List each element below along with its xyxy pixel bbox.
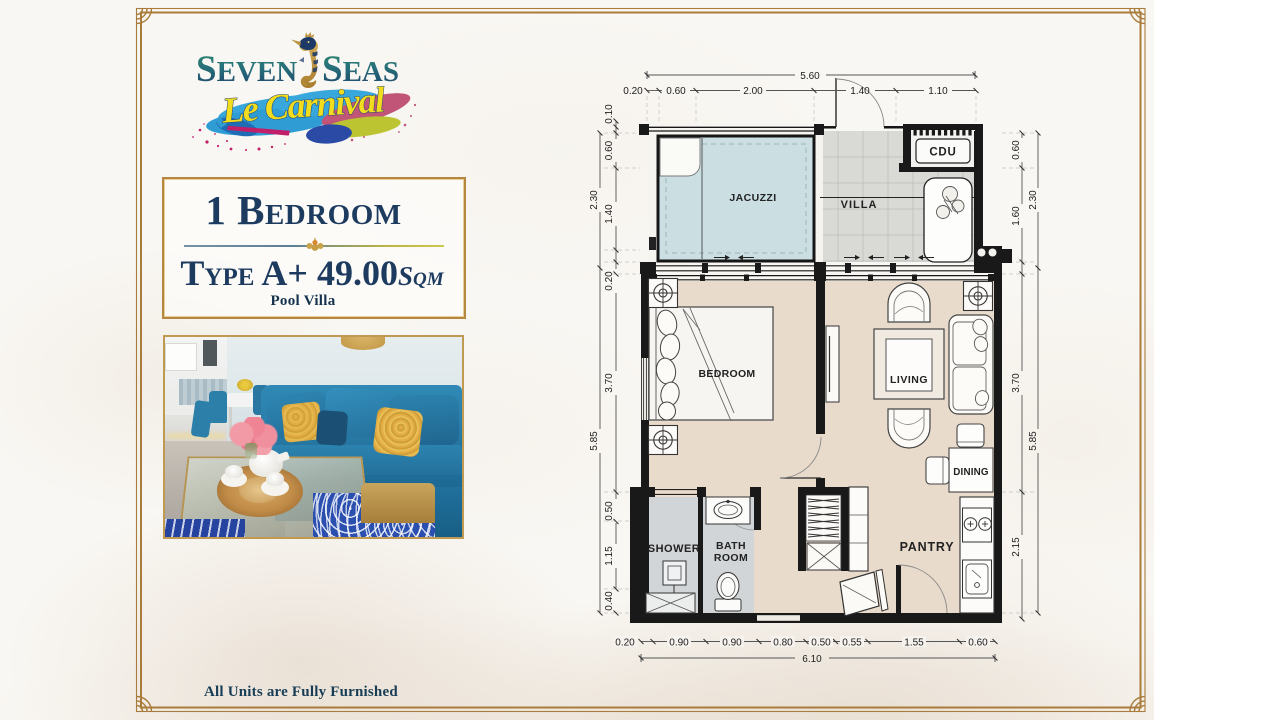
svg-text:0.50: 0.50 xyxy=(604,501,615,521)
svg-text:PANTRY: PANTRY xyxy=(900,540,955,554)
svg-text:0.60: 0.60 xyxy=(666,86,686,97)
svg-text:0.60: 0.60 xyxy=(1011,140,1022,160)
svg-text:CDU: CDU xyxy=(929,147,956,159)
svg-text:5.85: 5.85 xyxy=(589,431,600,451)
svg-text:ROOM: ROOM xyxy=(714,552,748,564)
svg-text:BEDROOM: BEDROOM xyxy=(699,368,756,380)
svg-text:BATH: BATH xyxy=(716,540,746,552)
svg-text:3.70: 3.70 xyxy=(604,373,615,393)
svg-text:1.15: 1.15 xyxy=(604,546,615,566)
svg-text:SEVEN: SEVEN xyxy=(196,49,297,90)
svg-text:0.10: 0.10 xyxy=(604,104,615,124)
svg-text:0.50: 0.50 xyxy=(811,638,831,649)
svg-text:1.60: 1.60 xyxy=(1011,206,1022,226)
svg-text:5.85: 5.85 xyxy=(1028,431,1039,451)
svg-text:1.40: 1.40 xyxy=(604,204,615,224)
svg-text:0.90: 0.90 xyxy=(722,638,742,649)
svg-text:0.20: 0.20 xyxy=(615,638,635,649)
svg-text:JACUZZI: JACUZZI xyxy=(729,192,776,204)
svg-text:2.15: 2.15 xyxy=(1011,537,1022,557)
svg-text:0.60: 0.60 xyxy=(604,140,615,160)
svg-text:0.80: 0.80 xyxy=(773,638,793,649)
svg-text:LIVING: LIVING xyxy=(890,374,928,386)
svg-text:VILLA: VILLA xyxy=(841,199,878,211)
svg-text:1.10: 1.10 xyxy=(928,86,948,97)
svg-text:DINING: DINING xyxy=(953,467,989,478)
svg-text:1.55: 1.55 xyxy=(904,638,924,649)
svg-text:6.10: 6.10 xyxy=(802,654,822,665)
svg-text:2.00: 2.00 xyxy=(743,86,763,97)
svg-text:0.20: 0.20 xyxy=(604,271,615,291)
svg-text:0.55: 0.55 xyxy=(842,638,862,649)
svg-text:0.90: 0.90 xyxy=(669,638,689,649)
svg-text:SHOWER: SHOWER xyxy=(648,543,701,555)
svg-text:0.40: 0.40 xyxy=(604,591,615,611)
svg-text:2.30: 2.30 xyxy=(589,190,600,210)
svg-text:1.40: 1.40 xyxy=(850,86,870,97)
svg-text:0.20: 0.20 xyxy=(623,86,643,97)
svg-text:5.60: 5.60 xyxy=(800,71,820,82)
svg-text:0.60: 0.60 xyxy=(968,638,988,649)
svg-text:3.70: 3.70 xyxy=(1011,373,1022,393)
svg-text:2.30: 2.30 xyxy=(1028,190,1039,210)
